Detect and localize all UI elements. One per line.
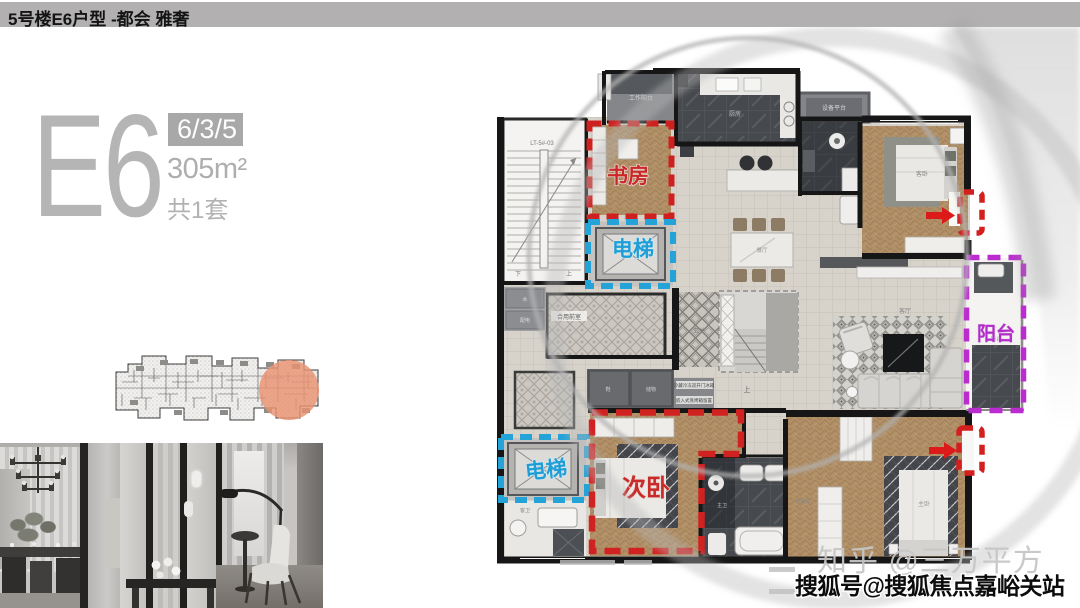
- svg-text:搜狐号@搜狐焦点嘉峪关站: 搜狐号@搜狐焦点嘉峪关站: [795, 573, 1065, 599]
- svg-text:餐厅: 餐厅: [756, 246, 768, 254]
- svg-text:下: 下: [515, 271, 521, 278]
- svg-text:设备平台: 设备平台: [822, 104, 846, 112]
- svg-text:衣帽间: 衣帽间: [795, 498, 810, 505]
- svg-text:客卧: 客卧: [916, 170, 928, 178]
- svg-text:厨房: 厨房: [729, 110, 741, 118]
- svg-text:鞋: 鞋: [605, 386, 610, 393]
- svg-text:玄关: 玄关: [693, 327, 705, 335]
- svg-text:主卧: 主卧: [918, 500, 930, 508]
- svg-text:上: 上: [744, 385, 751, 394]
- svg-text:LT-5#-03: LT-5#-03: [530, 141, 554, 147]
- svg-text:冷藏冷冻双开门冰箱: 冷藏冷冻双开门冰箱: [674, 382, 715, 389]
- svg-text:阳台: 阳台: [977, 322, 1015, 345]
- svg-text:客厅: 客厅: [899, 307, 911, 315]
- svg-text:水: 水: [522, 296, 527, 303]
- svg-text:配电: 配电: [520, 317, 530, 324]
- svg-text:电梯: 电梯: [612, 237, 654, 261]
- svg-text:储物: 储物: [646, 386, 656, 393]
- svg-text:书房: 书房: [607, 164, 649, 188]
- svg-text:客卫: 客卫: [520, 507, 530, 514]
- svg-text:嵌入式蒸烤箱留置: 嵌入式蒸烤箱留置: [676, 397, 712, 404]
- svg-text:电梯: 电梯: [524, 456, 568, 484]
- svg-text:主卫: 主卫: [717, 502, 727, 509]
